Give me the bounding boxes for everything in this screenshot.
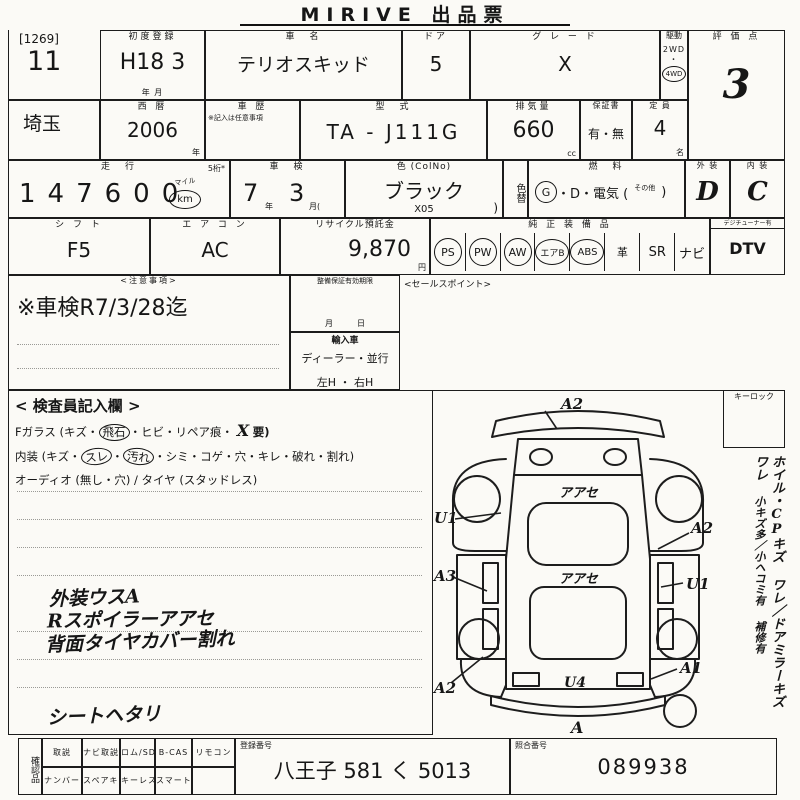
hand-note-3: 背面タイヤカバー割れ — [45, 624, 235, 658]
auction-sheet: MIRIVE 出品票 [1269] 11 初度登録 H18 3 年 月 車 名 … — [0, 0, 800, 800]
equipment-aw: AW — [504, 238, 532, 266]
shaken-year-unit: 年 — [265, 201, 273, 212]
registration-number-value: 八王子 581 く 5013 — [236, 755, 509, 785]
fuel-close-paren: ) — [661, 185, 666, 200]
warranty-label: 保証書 — [581, 101, 631, 111]
diagram-label-rear-bottom: A — [569, 718, 583, 736]
footer-cell-smart-key: スマートキー — [155, 767, 192, 795]
fuel-box: 燃 料 G ・D・電気 ( その他 ) — [528, 160, 685, 218]
interior-circled-yogore: 汚れ — [122, 446, 154, 466]
model-code-box: 型 式 TA - J111G — [300, 100, 487, 160]
caution-header: <注意事項> — [9, 276, 289, 286]
recycle-fee-label: リサイクル預託金 — [281, 219, 429, 231]
reference-number-label: 照合番号 — [511, 739, 776, 751]
interior-grade-value: C — [731, 177, 784, 207]
drive-2wd: 2WD — [661, 45, 687, 55]
keylock-box: キーロック — [723, 390, 785, 448]
maintenance-box: 整備保証有効期限 月 日 — [290, 275, 400, 332]
mileage-box: 走 行 5桁* 147600 マイル km — [8, 160, 230, 218]
sidebar-note-wheel: ホイル・CPキズ ワレ — [769, 455, 784, 604]
color-box: 色 (ColNo) ブラック X05 ) — [345, 160, 503, 218]
displacement-label: 排気量 — [488, 101, 579, 113]
diagram-label-left-mid: A3 — [433, 567, 456, 585]
maintenance-header: 整備保証有効期限 — [291, 276, 399, 286]
footer-cell-empty — [192, 767, 235, 795]
diagram-label-front-top: A2 — [559, 395, 583, 413]
doors-value: 5 — [403, 53, 469, 75]
car-name-value: テリオスキッド — [206, 55, 401, 76]
footer-cell-remote: リモコン — [192, 738, 235, 767]
equipment-pw: PW — [469, 238, 497, 266]
interior-grade-box: 内 装 C — [730, 160, 785, 218]
reference-number-box: 照合番号 089938 — [510, 738, 777, 795]
import-handle-line: 左H ・ 右H — [291, 374, 399, 390]
drive-box: 駆動 2WD ・ 4WD — [660, 30, 688, 100]
fglass-circled-item: 飛石 — [99, 424, 130, 441]
mileage-km-unit-circled: km — [169, 190, 201, 209]
registration-number-label: 登録番号 — [236, 739, 509, 751]
footer-cell-manual: 取説 — [42, 738, 82, 767]
model-code-value: TA - J111G — [301, 121, 486, 143]
sidebar-hand-notes: ホイル・CPキズ ワレ／ドアミラーキズ ワレ 小キズ多／小ヘコミ有 補修有 — [723, 455, 785, 735]
equipment-row: PS PW AW エアB ABS 革 SR ナビ — [431, 233, 709, 271]
dtv-value: DTV — [711, 239, 784, 258]
equipment-label: 純 正 装 備 品 — [431, 219, 709, 233]
inspector-header: < 検査員記入欄 > — [9, 391, 432, 416]
history-label: 車 歴 — [206, 101, 299, 113]
sidebar-note-repair: 補修有 — [753, 621, 766, 654]
capacity-label: 定 員 — [633, 101, 687, 111]
displacement-unit: cc — [567, 149, 576, 158]
sidebar-note-scratches: 小キズ多／小ヘコミ有 — [753, 496, 766, 606]
equipment-ps: PS — [434, 238, 462, 266]
hand-note-4: シートヘタリ — [47, 699, 162, 730]
color-code: X05 — [346, 204, 502, 215]
interior-circled-sure: スレ — [80, 446, 113, 466]
shaken-label: 車 検 — [231, 161, 344, 173]
shift-value: F5 — [9, 239, 149, 261]
lot-ref: [1269] — [19, 32, 59, 46]
recycle-fee-value: 9,870 — [281, 237, 411, 262]
keylock-label: キーロック — [724, 391, 784, 402]
fuel-label: 燃 料 — [529, 161, 684, 173]
history-note: ※記入は任意事項 — [206, 113, 299, 123]
capacity-value: 4 — [633, 117, 687, 139]
aircon-box: エ ア コ ン AC — [150, 218, 280, 275]
score-label: 評 価 点 — [689, 31, 784, 43]
grade-value: X — [471, 53, 659, 75]
footer-check-label: 確認品 — [18, 738, 42, 795]
year-unit: 年 — [192, 147, 200, 158]
warranty-value: 有・無 — [581, 125, 631, 142]
grade-label: グ レ ー ド — [471, 31, 659, 43]
sales-point-header: <セールスポイント> — [400, 275, 785, 290]
car-diagram-area: A2 U1 A2 A3 アアセ アアセ U1 A2 U4 A1 A — [433, 390, 723, 735]
first-registration-units: 年 月 — [101, 88, 204, 98]
exterior-grade-label: 外 装 — [686, 161, 729, 171]
diagram-label-rear-right: A1 — [678, 659, 702, 677]
maintenance-units: 月 日 — [291, 318, 399, 329]
capacity-box: 定 員 4 名 — [632, 100, 688, 160]
fuel-options: ・D・電気 ( — [557, 183, 628, 202]
car-name-box: 車 名 テリオスキッド — [205, 30, 402, 100]
doors-box: ドア 5 — [402, 30, 470, 100]
prefecture-value: 埼玉 — [9, 101, 99, 136]
color-value: ブラック — [346, 175, 502, 204]
caution-box: <注意事項> ※車検R7/3/28迄 — [8, 275, 290, 390]
displacement-value: 660 — [488, 119, 579, 143]
score-value: 3 — [689, 61, 784, 108]
first-registration-box: 初度登録 H18 3 年 月 — [100, 30, 205, 100]
lot-number: 11 — [27, 46, 61, 77]
color-change-box: 色替 — [503, 160, 528, 218]
car-name-label: 車 名 — [206, 31, 401, 43]
fglass-hand-x: X — [237, 421, 249, 440]
model-code-label: 型 式 — [301, 101, 486, 113]
interior-grade-label: 内 装 — [731, 161, 784, 171]
diagram-label-roof: アアセ — [559, 572, 599, 587]
interior-line: 内装 (キズ・スレ・汚れ・シミ・コゲ・穴・キレ・破れ・割れ) — [9, 441, 432, 465]
dtv-note: デジチューナー有 — [711, 219, 784, 229]
equipment-abs: ABS — [570, 239, 604, 265]
aircon-label: エ ア コ ン — [151, 219, 279, 231]
drive-separator: ・ — [661, 55, 687, 65]
dtv-box: デジチューナー有 DTV — [710, 218, 785, 275]
equipment-leather: 革 — [617, 244, 628, 260]
exterior-grade-box: 外 装 D — [685, 160, 730, 218]
mileage-mile-unit: マイル — [164, 174, 205, 189]
drive-label: 駆動 — [661, 31, 687, 41]
shaken-box: 車 検 7 年 3 月( — [230, 160, 345, 218]
import-box: 輸入車 ディーラー・並行 左H ・ 右H — [290, 332, 400, 390]
shaken-month-unit: 月( — [309, 201, 320, 212]
footer-cell-rom-sd: ロム/SD — [120, 738, 155, 767]
import-dealer-line: ディーラー・並行 — [291, 350, 399, 366]
fuel-other-label: その他 — [634, 183, 655, 193]
diagram-label-right-upper: A2 — [689, 519, 713, 537]
drive-4wd-circled: 4WD — [662, 66, 686, 82]
warranty-box: 保証書 有・無 — [580, 100, 632, 160]
grade-box: グ レ ー ド X — [470, 30, 660, 100]
page-title: MIRIVE 出品票 — [240, 0, 570, 26]
score-box: 評 価 点 3 — [688, 30, 785, 160]
reference-number-value: 089938 — [511, 755, 776, 779]
aircon-value: AC — [151, 239, 279, 261]
footer-cell-spare-key: スペアキー — [82, 767, 120, 795]
color-paren: ) — [493, 201, 498, 215]
history-box: 車 歴 ※記入は任意事項 — [205, 100, 300, 160]
recycle-fee-unit: 円 — [418, 262, 426, 273]
fglass-line: Fガラス (キズ・飛石・ヒビ・リペア痕・ X 要) — [9, 416, 432, 441]
diagram-label-front-left: U1 — [434, 509, 458, 527]
year-value: 2006 — [101, 119, 204, 141]
shift-label: シ フ ト — [9, 219, 149, 231]
color-label: 色 (ColNo) — [346, 161, 502, 173]
exterior-grade-value: D — [686, 177, 729, 207]
equipment-navi: ナビ — [679, 243, 705, 262]
mileage-note: 5桁* — [208, 163, 225, 174]
footer-cell-bcas: B-CAS — [155, 738, 192, 767]
registration-number-box: 登録番号 八王子 581 く 5013 — [235, 738, 510, 795]
footer-cell-keyless: キーレス — [120, 767, 155, 795]
car-topview-diagram: A2 U1 A2 A3 アアセ アアセ U1 A2 U4 A1 A — [433, 391, 723, 736]
sales-point-area: <セールスポイント> — [400, 275, 785, 390]
equipment-airbag: エアB — [535, 239, 569, 265]
inspector-box: < 検査員記入欄 > Fガラス (キズ・飛石・ヒビ・リペア痕・ X 要) 内装 … — [8, 390, 433, 735]
shaken-year: 7 — [243, 179, 258, 207]
equipment-box: 純 正 装 備 品 PS PW AW エアB ABS 革 SR ナビ — [430, 218, 710, 275]
audio-tire-line: オーディオ (無し・穴) / タイヤ (スタッドレス) — [9, 465, 432, 488]
shift-box: シ フ ト F5 — [8, 218, 150, 275]
footer-cell-number-plate: ナンバー — [42, 767, 82, 795]
year-box: 西 暦 2006 年 — [100, 100, 205, 160]
footer-cell-navi-manual: ナビ取説 — [82, 738, 120, 767]
equipment-sr: SR — [649, 245, 666, 260]
diagram-label-hood: アアセ — [559, 486, 599, 501]
first-registration-value: H18 3 — [101, 51, 204, 75]
capacity-unit: 名 — [676, 147, 684, 158]
import-header: 輸入車 — [291, 333, 399, 346]
diagram-label-rear-left: A2 — [433, 679, 456, 697]
prefecture-box: 埼玉 — [8, 100, 100, 160]
mileage-label: 走 行 — [44, 161, 194, 173]
diagram-label-hatch: U4 — [564, 675, 586, 691]
caution-text: ※車検R7/3/28迄 — [9, 286, 289, 322]
shaken-month: 3 — [289, 179, 304, 207]
lot-box: [1269] 11 — [8, 30, 100, 100]
diagram-label-right-mid: U1 — [686, 575, 710, 593]
year-label: 西 暦 — [101, 101, 204, 113]
recycle-fee-box: リサイクル預託金 9,870 円 — [280, 218, 430, 275]
displacement-box: 排気量 660 cc — [487, 100, 580, 160]
first-registration-label: 初度登録 — [101, 31, 204, 43]
fuel-gasoline-circled: G — [535, 181, 557, 203]
doors-label: ドア — [403, 31, 469, 43]
